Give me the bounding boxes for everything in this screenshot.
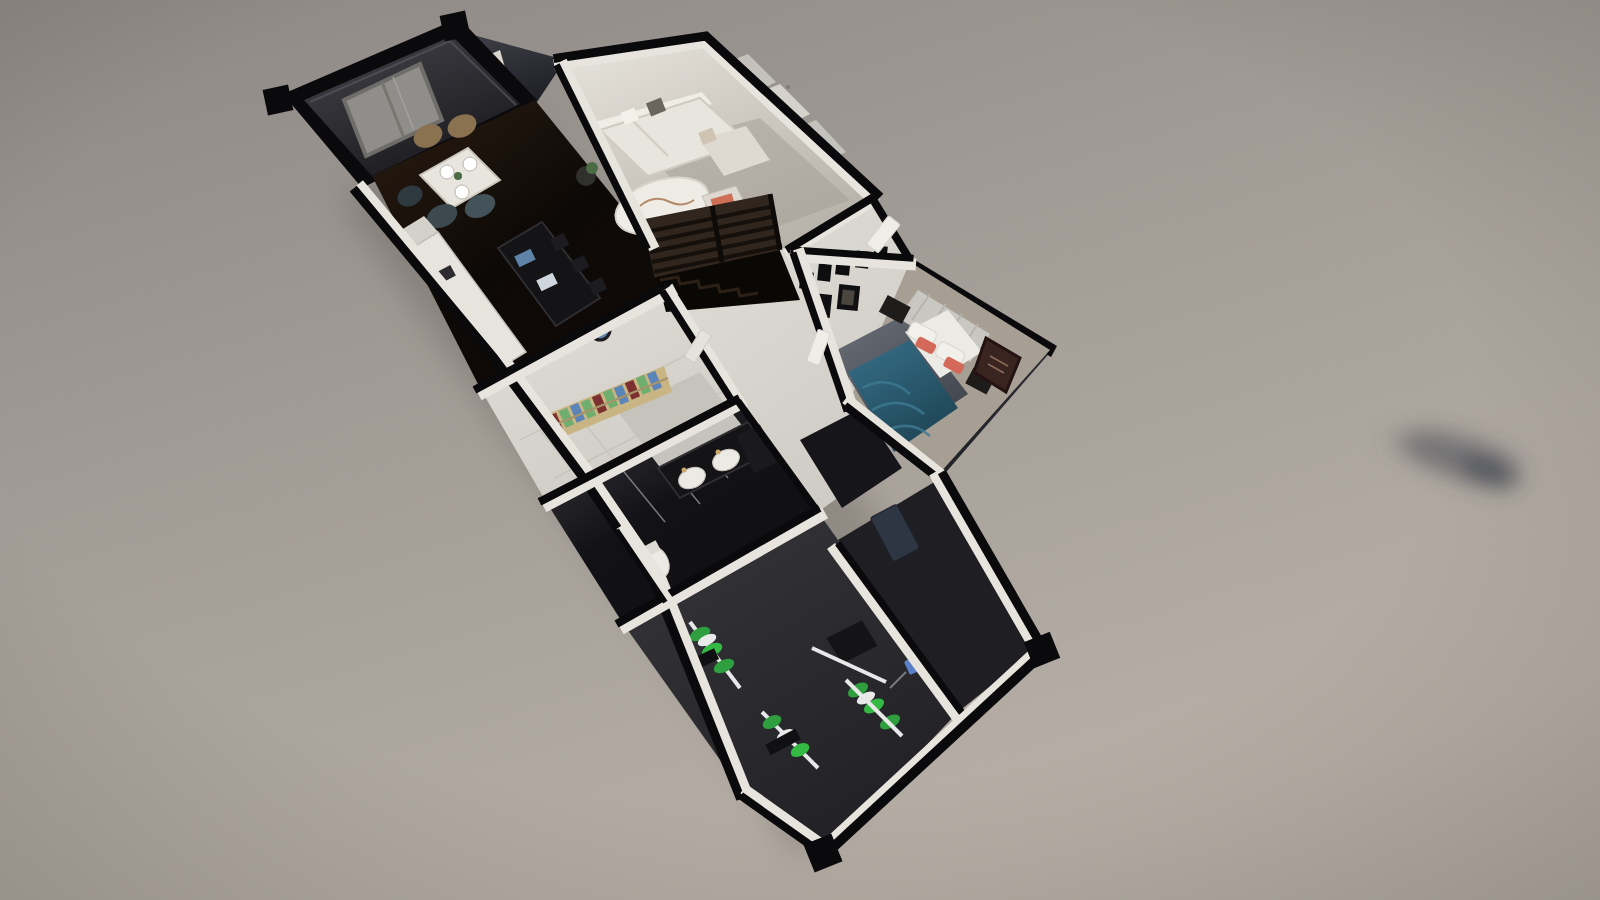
plate <box>463 157 477 171</box>
post-terrace-north <box>440 11 471 42</box>
floorplan-render <box>0 0 1600 900</box>
frame-art <box>841 289 855 305</box>
faucet <box>682 468 687 473</box>
render-viewport <box>0 0 1600 900</box>
picture-frame <box>817 263 832 281</box>
dust-speck <box>786 85 790 89</box>
faucet <box>716 450 721 455</box>
centerpiece-plant <box>454 172 462 180</box>
plate <box>455 185 469 199</box>
plant <box>586 162 598 174</box>
plate <box>440 165 454 179</box>
post-terrace-west <box>263 85 294 116</box>
